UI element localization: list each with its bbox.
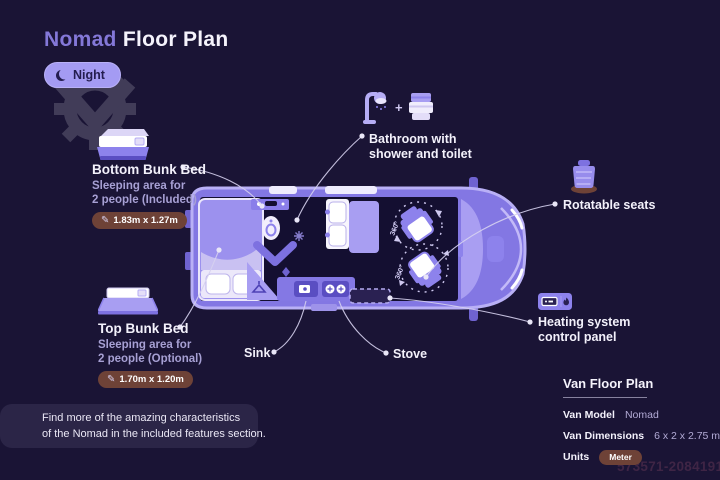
van-floorplan-illustration: 360° 360°: [185, 150, 535, 330]
callout-heating: Heating system control panel: [538, 293, 630, 345]
page-title: Nomad Floor Plan: [44, 28, 229, 52]
rotatable-seats-label: Rotatable seats: [563, 198, 655, 213]
night-mode-toggle[interactable]: Night: [44, 62, 121, 88]
bottom-bunk-desc-2: 2 people (Included): [92, 194, 206, 208]
sparkle-icon: [294, 231, 304, 241]
bottom-bunk-dimensions: 1.83m x 1.27m: [113, 215, 177, 226]
callout-top-bunk: Top Bunk Bed Sleeping area for 2 people …: [98, 287, 202, 388]
nomad-floorplan-page: { "header": { "title_accent": "Nomad", "…: [0, 0, 720, 480]
table-row-units: Units Meter: [563, 450, 719, 464]
heater-location: [350, 289, 390, 303]
page-title-brand: Nomad: [44, 28, 117, 51]
toilet-icon: [409, 93, 433, 121]
pencil-icon: ✎: [107, 375, 115, 385]
bathroom-label-2: shower and toilet: [369, 147, 472, 162]
spec-value: Nomad: [625, 409, 659, 421]
night-mode-label: Night: [73, 68, 105, 82]
heating-label-2: control panel: [538, 330, 630, 345]
table-row-van-model: Van Model Nomad: [563, 408, 719, 422]
spec-table-title: Van Floor Plan: [563, 376, 719, 391]
callout-bathroom: + Bathroom with shower and toilet: [363, 90, 472, 162]
shower-icon: [363, 90, 389, 124]
top-bunk-desc-2: 2 people (Optional): [98, 353, 202, 367]
bottom-bunk-bed-icon: [94, 127, 152, 161]
table-row-van-dimensions: Van Dimensions 6 x 2 x 2.75 m: [563, 429, 719, 443]
callout-rotatable-seats: Rotatable seats: [563, 160, 655, 213]
sink-label: Sink: [244, 346, 270, 361]
top-bunk-dimensions-badge: ✎ 1.70m x 1.20m: [98, 371, 193, 388]
van-kitchen: [277, 277, 355, 301]
features-note: Find more of the amazing characteristics…: [0, 404, 258, 448]
spec-value: 6 x 2 x 2.75 m: [654, 430, 720, 442]
heating-panel-icon: [538, 293, 572, 310]
top-bunk-bed-icon: [98, 287, 158, 317]
page-title-rest: Floor Plan: [123, 28, 229, 51]
seat-icon: [568, 160, 600, 194]
top-bunk-desc-1: Sleeping area for: [98, 339, 202, 353]
features-note-line-2: of the Nomad in the included features se…: [42, 426, 258, 443]
stove-label: Stove: [393, 347, 427, 362]
spec-label: Van Dimensions: [563, 430, 644, 442]
callout-bottom-bunk: Bottom Bunk Bed Sleeping area for 2 peop…: [92, 127, 206, 229]
bathroom-label-1: Bathroom with: [369, 132, 472, 147]
van-dinette: [325, 199, 379, 253]
spec-table-divider: [563, 397, 647, 398]
spec-table: Van Floor Plan Van Model Nomad Van Dimen…: [563, 376, 719, 471]
top-bunk-dimensions: 1.70m x 1.20m: [119, 374, 183, 385]
bottom-bunk-desc-1: Sleeping area for: [92, 180, 206, 194]
heating-label-1: Heating system: [538, 315, 630, 330]
spec-label: Van Model: [563, 409, 615, 421]
plus-sign: +: [393, 100, 405, 115]
bottom-bunk-title: Bottom Bunk Bed: [92, 162, 206, 177]
units-meter-badge[interactable]: Meter: [599, 450, 642, 465]
pencil-icon: ✎: [101, 216, 109, 226]
top-bunk-title: Top Bunk Bed: [98, 321, 202, 336]
bottom-bunk-dimensions-badge: ✎ 1.83m x 1.27m: [92, 212, 187, 229]
spec-label: Units: [563, 451, 589, 463]
features-note-line-1: Find more of the amazing characteristics: [42, 410, 258, 427]
moon-icon: [56, 70, 67, 81]
